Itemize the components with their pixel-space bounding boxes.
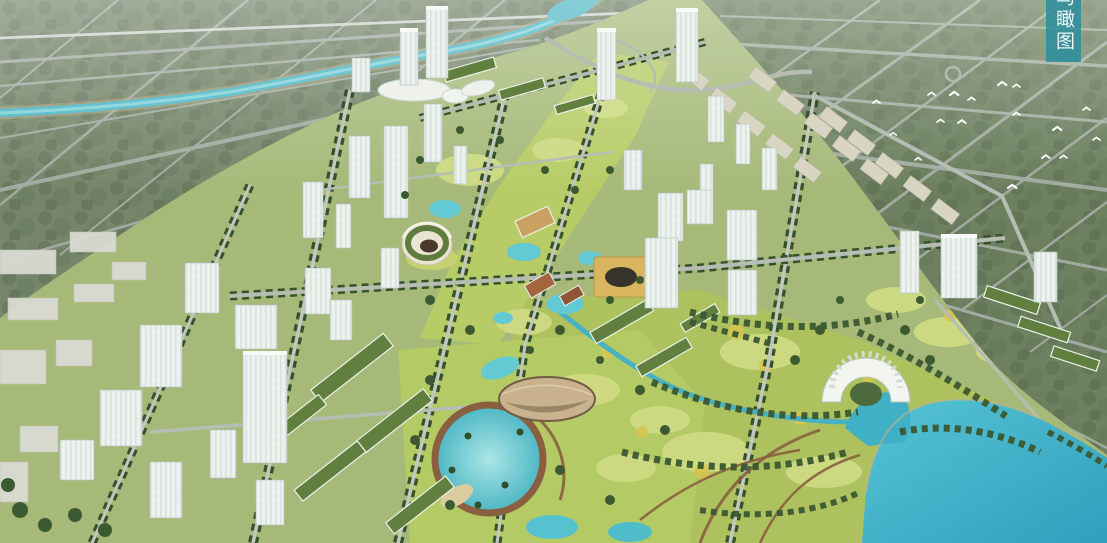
circular-pond xyxy=(435,405,543,513)
sand-crater xyxy=(499,377,595,421)
masterplan-scene xyxy=(0,0,1107,543)
title-banner-text: 鸟瞰图 xyxy=(1046,0,1081,53)
aerial-rendering: 鸟瞰图 xyxy=(0,0,1107,543)
stadium xyxy=(402,223,452,265)
